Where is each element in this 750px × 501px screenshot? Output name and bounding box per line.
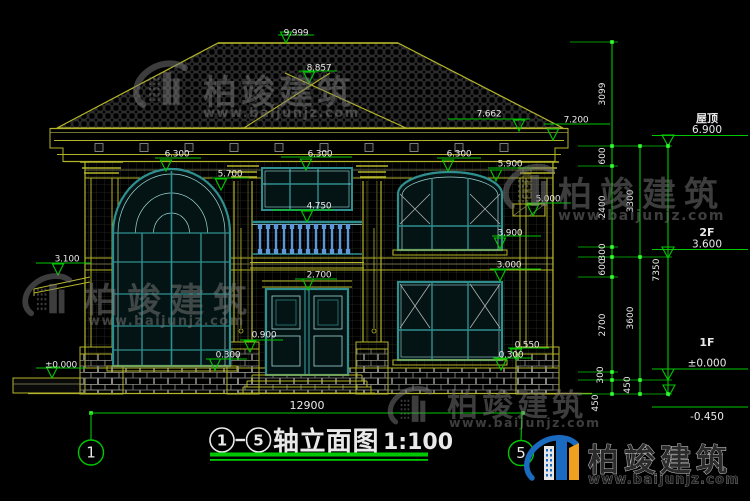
baluster-base [338, 249, 342, 254]
brand-dot [546, 464, 548, 467]
chain-dim-value: 600 [598, 258, 608, 275]
chain-tick [666, 392, 670, 396]
elevation-value: 0.300 [499, 351, 524, 361]
logo-dot [45, 298, 47, 300]
logo-dot [401, 413, 403, 415]
logo-dot [408, 408, 410, 410]
logo-dot [158, 98, 160, 101]
chain-dim-value: 450 [623, 376, 633, 393]
baluster-base [346, 249, 350, 254]
logo-dot [158, 93, 160, 96]
baluster-cap [290, 224, 294, 229]
logo-dot [153, 88, 155, 91]
baluster-base [330, 249, 334, 254]
elevation-value: 0.300 [216, 351, 241, 361]
window-right-1f [393, 282, 507, 365]
overall-dim-value: 12900 [290, 399, 325, 412]
floor-elevation: 3.600 [692, 239, 722, 251]
chain-tick [610, 40, 614, 44]
elevation-value: 0.550 [515, 341, 540, 351]
chain-tick [638, 144, 642, 148]
logo-dot [37, 289, 39, 291]
logo-dot [37, 298, 39, 300]
logo-dot [522, 185, 524, 187]
arched-window-right-2f [393, 172, 507, 255]
elevation-drawing: 9.9998.8577.6627.2006.3006.3006.3005.900… [0, 0, 750, 501]
logo-dot [518, 190, 520, 192]
floor-label: 2F [699, 226, 714, 239]
elevation-value: 7.662 [477, 110, 502, 120]
chain-tick [610, 255, 614, 259]
arched-window-left [107, 169, 237, 371]
brand-building-white [544, 446, 554, 480]
brand-dot [546, 454, 548, 457]
chain-dim-value: 300 [596, 366, 606, 383]
baluster-cap [266, 224, 270, 229]
logo-dot [149, 98, 151, 101]
floor-elevation: 6.900 [692, 124, 722, 136]
logo-dot [153, 98, 155, 101]
logo-dot [45, 289, 47, 291]
logo-dot [45, 303, 47, 305]
chain-tick [638, 392, 642, 396]
baluster-base [266, 249, 270, 254]
logo-dot [526, 200, 528, 202]
logo-dot [518, 195, 520, 197]
cornice-dentil [365, 144, 373, 152]
logo-dot [158, 88, 160, 91]
logo-dot [404, 413, 406, 415]
logo-dot [401, 417, 403, 419]
logo-building [541, 181, 547, 206]
elevation-value: 6.300 [308, 150, 333, 160]
baluster-base [282, 249, 286, 254]
logo-dot [41, 293, 43, 295]
logo-dot [401, 404, 403, 406]
brand-dot [546, 449, 548, 452]
chain-tick [610, 378, 614, 382]
cad-drawing-viewport: 9.9998.8577.6627.2006.3006.3006.3005.900… [0, 0, 750, 501]
logo-dot [153, 83, 155, 86]
logo-building [420, 401, 425, 422]
logo-dot [153, 93, 155, 96]
logo-dot [149, 77, 151, 80]
cornice-dentil [140, 144, 148, 152]
elevation-value: ±0.000 [45, 361, 78, 371]
baluster-cap [274, 224, 278, 229]
cornice-dentil [230, 144, 238, 152]
logo-dot [37, 293, 39, 295]
baluster-base [290, 249, 294, 254]
baluster-base [314, 249, 318, 254]
logo-dot [401, 400, 403, 402]
baluster-base [298, 249, 302, 254]
cornice-dentil [95, 144, 103, 152]
brand-dot [550, 469, 552, 472]
logo-dot [149, 93, 151, 96]
axis-number: 1 [86, 444, 96, 462]
entrance-door [262, 281, 352, 375]
chain-tick [638, 378, 642, 382]
chain-dim-value: 2700 [598, 313, 608, 336]
baluster-base [274, 249, 278, 254]
logo-dot [518, 180, 520, 182]
logo-dot [41, 303, 43, 305]
baluster-cap [282, 224, 286, 229]
title-underline-thin [210, 459, 428, 461]
logo-dot [153, 77, 155, 80]
logo-dot [41, 308, 43, 310]
drawing-title-text: 轴立面图 [273, 426, 379, 457]
chain-tick [610, 275, 614, 279]
baluster-base [258, 249, 262, 254]
watermark-url: www.baijunjz.com [558, 208, 725, 224]
chain-tick [610, 245, 614, 249]
baluster-cap [330, 224, 334, 229]
baluster-cap [338, 224, 342, 229]
brand-dot [550, 464, 552, 467]
logo-dot [408, 400, 410, 402]
chain-dim-value: 300 [598, 243, 608, 260]
logo-building [59, 290, 65, 314]
brand-building-blue [556, 440, 567, 480]
baluster-base [306, 249, 310, 254]
logo-building [531, 175, 539, 206]
chain-dim-value: 600 [598, 147, 608, 164]
logo-dot [526, 180, 528, 182]
logo-dot [41, 289, 43, 291]
watermark-url: www.baijunjz.com [203, 106, 360, 121]
brand-dot [550, 449, 552, 452]
logo-dot [401, 408, 403, 410]
elevation-value: 6.300 [447, 150, 472, 160]
floor-elevation: ±0.000 [688, 358, 727, 370]
logo-dot [518, 185, 520, 187]
drawing-scale: 1:100 [383, 430, 453, 455]
title-underline-thick [210, 453, 428, 457]
baluster-cap [322, 224, 326, 229]
logo-dot [158, 77, 160, 80]
chain-tick [666, 144, 670, 148]
brand-url: www.baijunjz.com [588, 473, 740, 488]
logo-dot [522, 180, 524, 182]
chain-dim-value: 3600 [626, 306, 636, 329]
cornice-dentil [275, 144, 283, 152]
brand-dot [546, 469, 548, 472]
brand-dot [546, 459, 548, 462]
chain-dim-value: 3099 [598, 82, 608, 105]
elevation-value: 3.100 [55, 255, 80, 265]
elevation-value: 4.750 [307, 202, 332, 212]
baluster-cap [258, 224, 262, 229]
cornice-dentil [410, 144, 418, 152]
brand-dot [546, 474, 548, 477]
logo-dot [404, 400, 406, 402]
elevation-value: 0.900 [252, 331, 277, 341]
logo-dot [45, 293, 47, 295]
elevation-value: 9.999 [284, 29, 309, 39]
floor-label: 1F [699, 336, 714, 349]
logo-building [49, 284, 57, 313]
logo-dot [408, 413, 410, 415]
logo-dot [518, 200, 520, 202]
elevation-value: 5.900 [498, 160, 523, 170]
elevation-value: 5.700 [218, 170, 243, 180]
floor-elevation: -0.450 [690, 411, 724, 423]
logo-dot [404, 404, 406, 406]
logo-dot [404, 408, 406, 410]
logo-dot [526, 185, 528, 187]
brand-dot [550, 459, 552, 462]
baluster-base [322, 249, 326, 254]
baluster-cap [306, 224, 310, 229]
elevation-value: 3.900 [498, 229, 523, 239]
cornice-dentil [500, 144, 508, 152]
title-axis-end: 5 [253, 432, 263, 450]
chain-tick [610, 392, 614, 396]
logo-dot [149, 83, 151, 86]
brand-dot [550, 454, 552, 457]
logo-building [173, 78, 179, 104]
logo-dot [41, 298, 43, 300]
axis-number: 5 [516, 444, 526, 462]
elevation-value: 8.857 [307, 64, 332, 74]
chain-tick [610, 164, 614, 168]
chain-tick [610, 370, 614, 374]
logo-dot [149, 88, 151, 91]
title-axis-start: 1 [217, 432, 227, 450]
chain-dim-value: 450 [591, 394, 601, 411]
chain-tick [610, 144, 614, 148]
baluster-cap [346, 224, 350, 229]
watermark-url: www.baijunjz.com [88, 314, 245, 329]
brand-dot [550, 474, 552, 477]
chain-dim-value: 7350 [652, 258, 662, 281]
logo-dot [404, 417, 406, 419]
logo-dot [37, 303, 39, 305]
logo-building [412, 396, 419, 422]
chain-tick [638, 255, 642, 259]
logo-dot [522, 200, 524, 202]
logo-dot [526, 195, 528, 197]
logo-dot [158, 83, 160, 86]
elevation-value: 7.200 [564, 116, 589, 126]
logo-dot [522, 195, 524, 197]
logo-dot [408, 404, 410, 406]
elevation-value: 6.300 [165, 150, 190, 160]
logo-dot [408, 417, 410, 419]
logo-dot [45, 308, 47, 310]
elevation-value: 3.000 [497, 261, 522, 271]
elevation-value: 2.700 [307, 271, 332, 281]
baluster-cap [298, 224, 302, 229]
logo-dot [526, 190, 528, 192]
logo-dot [37, 308, 39, 310]
logo-dot [522, 190, 524, 192]
brand-building-orange [569, 443, 579, 480]
logo-building [163, 72, 171, 105]
baluster-cap [314, 224, 318, 229]
watermark-url: www.baijunjz.com [449, 415, 601, 430]
